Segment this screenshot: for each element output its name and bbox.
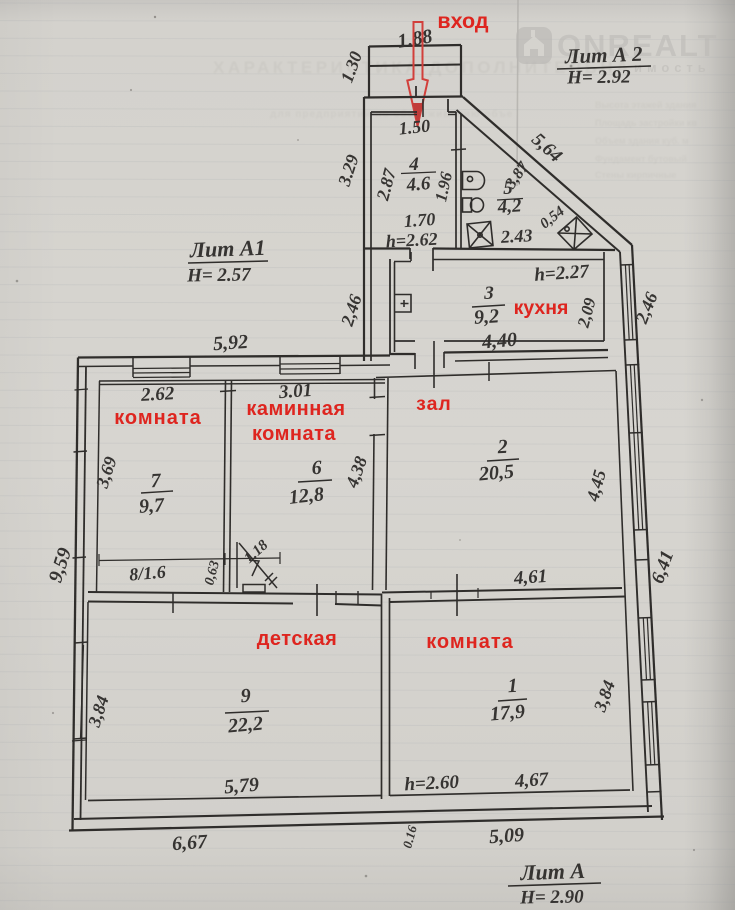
- svg-text:Н= 2.92: Н= 2.92: [566, 66, 631, 88]
- svg-text:2: 2: [496, 436, 508, 459]
- svg-text:Площадь застройки кв: Площадь застройки кв: [595, 118, 697, 128]
- svg-text:9,2: 9,2: [473, 305, 499, 329]
- svg-text:12,8: 12,8: [288, 483, 325, 509]
- svg-text:1.50: 1.50: [398, 115, 431, 138]
- svg-text:Фундамент бутовый: Фундамент бутовый: [595, 154, 687, 164]
- svg-text:1: 1: [507, 675, 518, 697]
- svg-text:8/1.6: 8/1.6: [128, 561, 166, 584]
- svg-text:комната: комната: [426, 631, 514, 653]
- svg-text:Высота этажей здания: Высота этажей здания: [595, 100, 696, 110]
- svg-text:Лит А 2: Лит А 2: [564, 42, 644, 69]
- svg-text:имость: имость: [634, 60, 711, 75]
- svg-text:Н= 2.57: Н= 2.57: [186, 264, 252, 286]
- svg-text:Стены кирпичные: Стены кирпичные: [595, 170, 676, 180]
- svg-text:3: 3: [483, 283, 494, 304]
- svg-text:Лит А1: Лит А1: [189, 235, 266, 263]
- svg-text:9,7: 9,7: [138, 494, 165, 518]
- svg-text:h=2.60: h=2.60: [404, 772, 460, 796]
- svg-text:2.43: 2.43: [499, 225, 533, 247]
- svg-text:Объем здания куб. м: Объем здания куб. м: [595, 136, 689, 146]
- svg-text:Лит А: Лит А: [519, 858, 585, 885]
- svg-text:вход: вход: [437, 9, 488, 33]
- svg-text:комната: комната: [114, 407, 202, 429]
- svg-text:5,92: 5,92: [212, 331, 248, 355]
- svg-text:4,61: 4,61: [512, 566, 548, 589]
- svg-text:6,67: 6,67: [171, 831, 208, 855]
- svg-text:Н= 2.90: Н= 2.90: [519, 886, 584, 908]
- svg-text:9: 9: [240, 685, 251, 707]
- svg-text:2.62: 2.62: [140, 383, 176, 406]
- svg-text:6: 6: [311, 457, 322, 479]
- svg-text:детская: детская: [257, 628, 338, 650]
- svg-text:5,09: 5,09: [488, 824, 524, 848]
- svg-text:каминная: каминная: [246, 398, 345, 420]
- svg-text:20,5: 20,5: [477, 461, 515, 486]
- svg-text:4,67: 4,67: [513, 769, 550, 792]
- svg-text:17,9: 17,9: [489, 701, 526, 726]
- svg-text:комната: комната: [252, 423, 336, 445]
- svg-text:h=2.27: h=2.27: [534, 261, 591, 286]
- svg-text:22,2: 22,2: [226, 713, 264, 738]
- svg-text:кухня: кухня: [514, 297, 569, 319]
- svg-text:4.6: 4.6: [405, 173, 432, 196]
- svg-text:1.70: 1.70: [403, 209, 436, 231]
- svg-text:зал: зал: [416, 393, 452, 415]
- svg-text:4: 4: [408, 154, 419, 175]
- svg-text:4,2: 4,2: [496, 195, 523, 218]
- svg-text:5,79: 5,79: [223, 774, 260, 799]
